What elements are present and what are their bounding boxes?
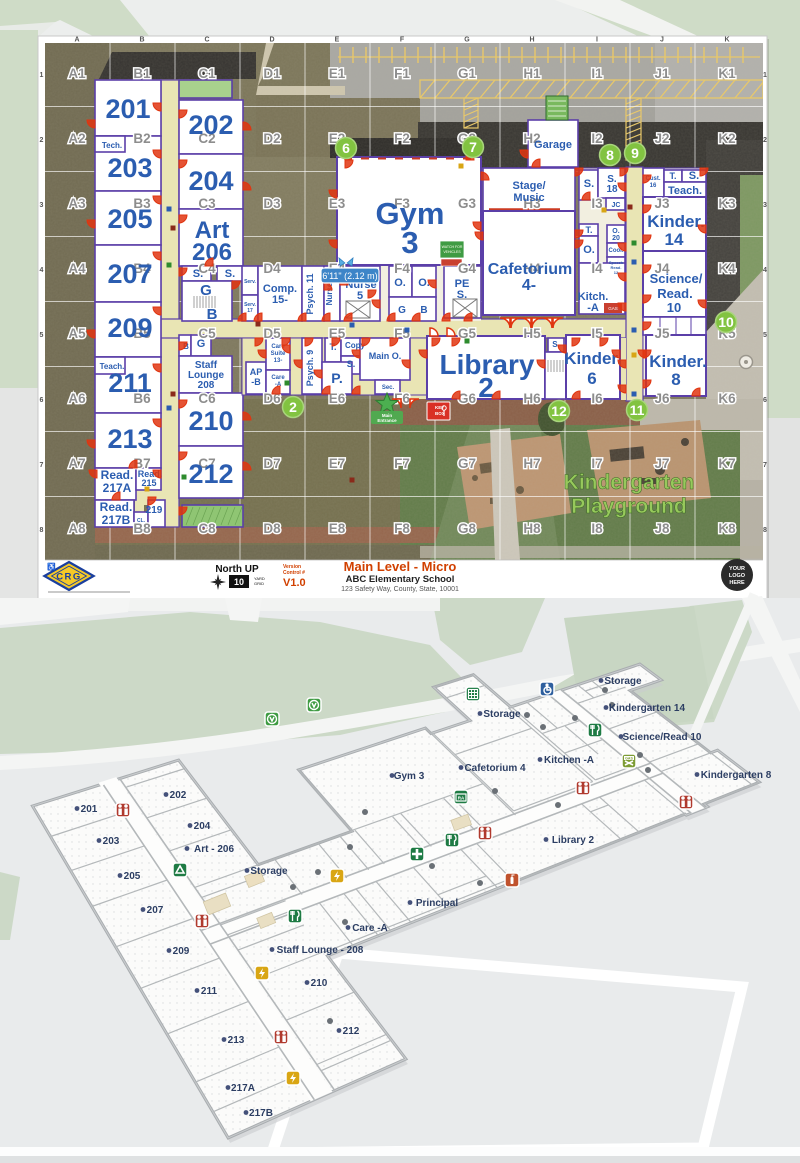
- svg-text:6: 6: [342, 140, 350, 156]
- svg-text:1: 1: [40, 72, 44, 79]
- svg-text:Cafetorium: Cafetorium: [488, 261, 572, 278]
- svg-text:6'11" (2.12 m): 6'11" (2.12 m): [322, 271, 377, 281]
- svg-text:Storage: Storage: [483, 709, 521, 720]
- svg-text:K1: K1: [718, 66, 736, 81]
- svg-text:S.: S.: [689, 170, 699, 182]
- svg-text:Library 2: Library 2: [552, 835, 595, 846]
- svg-text:V1.0: V1.0: [283, 577, 306, 589]
- svg-text:201: 201: [105, 94, 150, 124]
- svg-text:H8: H8: [523, 521, 541, 536]
- svg-text:B: B: [207, 306, 218, 323]
- svg-text:G4: G4: [458, 261, 477, 276]
- svg-text:Kindergarten: Kindergarten: [564, 471, 695, 494]
- svg-text:208: 208: [198, 380, 215, 391]
- svg-text:JC: JC: [612, 202, 621, 209]
- svg-text:H1: H1: [523, 66, 541, 81]
- svg-text:J6: J6: [654, 391, 670, 406]
- svg-text:S.: S.: [457, 289, 467, 301]
- svg-text:C3: C3: [198, 196, 216, 211]
- svg-text:I7: I7: [591, 456, 602, 471]
- svg-text:Psych. 9: Psych. 9: [305, 350, 315, 387]
- svg-text:Serv.: Serv.: [244, 279, 256, 285]
- svg-text:Garage: Garage: [534, 139, 572, 151]
- svg-text:Psych. 11: Psych. 11: [305, 273, 315, 314]
- svg-text:219: 219: [146, 505, 163, 516]
- svg-text:BOX: BOX: [435, 411, 445, 416]
- svg-text:CL.: CL.: [137, 518, 146, 524]
- svg-text:210: 210: [311, 978, 328, 989]
- svg-text:Care -A: Care -A: [352, 923, 388, 934]
- svg-text:S.: S.: [193, 268, 203, 280]
- svg-text:202: 202: [188, 110, 233, 140]
- svg-text:A4: A4: [68, 261, 86, 276]
- svg-text:Entrance: Entrance: [377, 418, 397, 423]
- svg-text:Suite: Suite: [271, 351, 286, 357]
- svg-text:A3: A3: [68, 196, 86, 211]
- svg-text:7: 7: [763, 462, 767, 469]
- svg-text:K3: K3: [718, 196, 736, 211]
- svg-text:A1: A1: [68, 66, 86, 81]
- svg-text:18: 18: [606, 184, 618, 195]
- svg-text:123 Safety Way, County, State,: 123 Safety Way, County, State, 10001: [341, 586, 459, 593]
- svg-text:J7: J7: [654, 456, 669, 471]
- svg-text:212: 212: [343, 1026, 360, 1037]
- svg-text:J1: J1: [654, 66, 670, 81]
- svg-text:WATCH FOR: WATCH FOR: [442, 245, 463, 249]
- svg-text:B: B: [420, 305, 427, 316]
- svg-text:D: D: [269, 37, 274, 44]
- svg-text:14: 14: [665, 230, 684, 249]
- svg-text:O.: O.: [394, 277, 406, 289]
- svg-text:5: 5: [40, 332, 44, 339]
- svg-text:Teach.: Teach.: [668, 185, 702, 197]
- svg-text:205: 205: [107, 204, 152, 234]
- svg-text:203: 203: [103, 836, 120, 847]
- svg-text:Staff Lounge - 208: Staff Lounge - 208: [277, 945, 364, 956]
- svg-text:217A: 217A: [231, 1083, 255, 1094]
- svg-text:G8: G8: [458, 521, 477, 536]
- svg-text:Read.: Read.: [100, 500, 133, 514]
- svg-text:13-: 13-: [274, 358, 283, 364]
- svg-text:H5: H5: [523, 326, 541, 341]
- svg-text:6: 6: [587, 369, 596, 388]
- svg-text:North UP: North UP: [215, 564, 259, 575]
- svg-text:G: G: [464, 37, 470, 44]
- svg-text:D8: D8: [263, 521, 281, 536]
- svg-text:Read.: Read.: [657, 286, 692, 301]
- svg-text:C6: C6: [198, 391, 216, 406]
- svg-text:F4: F4: [394, 261, 410, 276]
- svg-text:G: G: [398, 305, 406, 316]
- svg-text:C8: C8: [198, 521, 216, 536]
- svg-text:6: 6: [763, 397, 767, 404]
- svg-text:GAS: GAS: [625, 756, 633, 760]
- svg-text:♿: ♿: [47, 562, 56, 571]
- svg-text:7: 7: [469, 139, 477, 155]
- svg-text:Control #: Control #: [283, 570, 305, 576]
- svg-text:ABC Elementary School: ABC Elementary School: [346, 574, 455, 585]
- svg-text:J3: J3: [654, 196, 670, 211]
- svg-text:Kindergarten 14: Kindergarten 14: [609, 703, 686, 714]
- svg-text:Science/: Science/: [650, 271, 703, 286]
- svg-text:202: 202: [170, 790, 187, 801]
- svg-text:Cafetorium 4: Cafetorium 4: [464, 763, 526, 774]
- svg-text:Read.: Read.: [101, 468, 134, 482]
- svg-text:5: 5: [357, 290, 363, 302]
- svg-text:Art - 206: Art - 206: [194, 844, 234, 855]
- svg-text:J8: J8: [654, 521, 670, 536]
- svg-text:2: 2: [40, 137, 44, 144]
- svg-text:S.: S.: [225, 268, 235, 280]
- svg-text:12: 12: [551, 403, 567, 419]
- svg-text:10: 10: [718, 314, 734, 330]
- svg-text:-A: -A: [587, 302, 599, 314]
- svg-text:E: E: [335, 37, 340, 44]
- svg-text:Sec.: Sec.: [382, 385, 395, 391]
- svg-text:RA: RA: [458, 795, 465, 800]
- svg-text:Science/Read 10: Science/Read 10: [623, 732, 702, 743]
- svg-text:F: F: [400, 37, 405, 44]
- svg-text:J: J: [660, 37, 664, 44]
- svg-text:Main O.: Main O.: [369, 351, 402, 361]
- svg-text:Tech.: Tech.: [102, 141, 122, 150]
- svg-text:B2: B2: [133, 131, 150, 146]
- svg-text:A2: A2: [68, 131, 85, 146]
- svg-text:K4: K4: [718, 261, 736, 276]
- svg-text:204: 204: [188, 166, 233, 196]
- svg-text:J2: J2: [654, 131, 669, 146]
- svg-text:E8: E8: [329, 521, 346, 536]
- svg-text:205: 205: [124, 871, 141, 882]
- svg-text:217B: 217B: [102, 513, 131, 527]
- svg-text:T.: T.: [669, 171, 676, 181]
- svg-text:Kinder.: Kinder.: [647, 212, 705, 231]
- svg-text:C: C: [204, 37, 209, 44]
- svg-text:E6: E6: [329, 391, 346, 406]
- svg-text:Stage/: Stage/: [512, 180, 545, 192]
- svg-text:F8: F8: [394, 521, 410, 536]
- svg-text:F7: F7: [394, 456, 410, 471]
- svg-text:LOGO: LOGO: [729, 573, 746, 579]
- svg-text:A6: A6: [68, 391, 86, 406]
- svg-text:213: 213: [107, 424, 152, 454]
- svg-text:Kindergarten 8: Kindergarten 8: [701, 770, 772, 781]
- svg-text:G7: G7: [458, 456, 476, 471]
- svg-text:2: 2: [763, 137, 767, 144]
- svg-text:212: 212: [188, 459, 233, 489]
- svg-text:GAS: GAS: [608, 306, 618, 311]
- svg-text:8: 8: [40, 527, 44, 534]
- svg-text:E1: E1: [329, 66, 346, 81]
- svg-text:D4: D4: [263, 261, 281, 276]
- svg-text:3: 3: [40, 202, 44, 209]
- svg-text:11: 11: [630, 402, 645, 418]
- svg-text:17: 17: [247, 308, 253, 314]
- svg-text:209: 209: [173, 946, 190, 957]
- svg-text:T.: T.: [585, 225, 592, 235]
- svg-text:I4: I4: [591, 261, 603, 276]
- svg-text:C1: C1: [198, 66, 216, 81]
- svg-text:F2: F2: [394, 131, 410, 146]
- svg-text:8: 8: [606, 147, 614, 163]
- svg-text:Storage: Storage: [604, 676, 642, 687]
- svg-text:K6: K6: [718, 391, 736, 406]
- svg-text:K2: K2: [718, 131, 735, 146]
- svg-text:K: K: [724, 37, 729, 44]
- svg-text:Music: Music: [513, 192, 544, 204]
- svg-text:I1: I1: [591, 66, 603, 81]
- svg-text:F1: F1: [394, 66, 410, 81]
- svg-text:6: 6: [40, 397, 44, 404]
- svg-text:3: 3: [401, 225, 418, 260]
- svg-text:207: 207: [107, 259, 152, 289]
- svg-text:O.: O.: [583, 244, 595, 256]
- svg-text:4-: 4-: [522, 277, 536, 294]
- svg-text:G1: G1: [458, 66, 477, 81]
- svg-text:I2: I2: [591, 131, 602, 146]
- svg-text:10: 10: [234, 577, 244, 587]
- svg-text:K7: K7: [718, 456, 735, 471]
- svg-text:1: 1: [763, 72, 767, 79]
- svg-text:204: 204: [194, 821, 211, 832]
- svg-text:B: B: [139, 37, 144, 44]
- svg-text:D2: D2: [263, 131, 280, 146]
- svg-text:210: 210: [188, 406, 233, 436]
- svg-text:4: 4: [763, 267, 767, 274]
- svg-text:I3: I3: [591, 196, 603, 211]
- svg-text:7: 7: [40, 462, 44, 469]
- svg-text:H: H: [529, 37, 534, 44]
- svg-text:A5: A5: [68, 326, 86, 341]
- svg-text:2: 2: [289, 399, 297, 415]
- svg-text:207: 207: [147, 905, 164, 916]
- svg-text:B1: B1: [133, 66, 151, 81]
- svg-text:H6: H6: [523, 391, 541, 406]
- svg-text:P.: P.: [331, 370, 342, 386]
- svg-text:-B: -B: [251, 377, 261, 387]
- svg-text:I8: I8: [591, 521, 603, 536]
- svg-text:15-: 15-: [272, 294, 288, 306]
- svg-text:8: 8: [763, 527, 767, 534]
- svg-text:J5: J5: [654, 326, 670, 341]
- svg-text:A: A: [74, 37, 79, 44]
- svg-text:A7: A7: [68, 456, 85, 471]
- svg-text:G3: G3: [458, 196, 477, 211]
- svg-text:E7: E7: [329, 456, 346, 471]
- svg-text:9: 9: [631, 145, 639, 161]
- svg-text:5: 5: [763, 332, 767, 339]
- svg-text:HERE: HERE: [729, 580, 745, 586]
- svg-text:Kitchen -A: Kitchen -A: [544, 755, 594, 766]
- svg-text:211: 211: [201, 986, 218, 997]
- svg-text:217B: 217B: [249, 1108, 273, 1119]
- svg-text:G6: G6: [458, 391, 477, 406]
- svg-text:K8: K8: [718, 521, 736, 536]
- svg-text:8: 8: [671, 370, 680, 389]
- svg-text:D7: D7: [263, 456, 280, 471]
- svg-text:G: G: [197, 338, 206, 350]
- svg-text:Playground: Playground: [571, 495, 687, 518]
- svg-text:Care: Care: [271, 375, 285, 381]
- svg-text:I: I: [596, 37, 598, 44]
- svg-text:D3: D3: [263, 196, 281, 211]
- svg-text:4: 4: [40, 267, 44, 274]
- svg-text:Principal: Principal: [416, 898, 458, 909]
- svg-text:O.: O.: [612, 228, 619, 235]
- svg-text:3: 3: [763, 202, 767, 209]
- svg-text:I6: I6: [591, 391, 603, 406]
- svg-text:VEHICLES: VEHICLES: [443, 250, 461, 254]
- svg-text:A8: A8: [68, 521, 86, 536]
- svg-text:Kinder.: Kinder.: [649, 352, 707, 371]
- svg-text:YOUR: YOUR: [729, 566, 745, 572]
- svg-text:Storage: Storage: [250, 866, 288, 877]
- svg-text:201: 201: [81, 804, 98, 815]
- svg-text:D5: D5: [263, 326, 281, 341]
- svg-text:D1: D1: [263, 66, 281, 81]
- svg-text:S.: S.: [584, 178, 594, 190]
- svg-text:GRID: GRID: [254, 581, 264, 586]
- svg-text:203: 203: [107, 153, 152, 183]
- svg-text:2: 2: [478, 372, 494, 403]
- svg-text:Gym 3: Gym 3: [394, 771, 425, 782]
- svg-text:10: 10: [667, 300, 681, 315]
- svg-text:213: 213: [228, 1035, 245, 1046]
- svg-text:211: 211: [108, 368, 152, 398]
- svg-text:AP: AP: [250, 367, 263, 377]
- svg-text:G: G: [200, 282, 212, 299]
- svg-text:16: 16: [650, 183, 657, 189]
- svg-text:CRG: CRG: [56, 572, 82, 583]
- svg-text:20: 20: [612, 235, 620, 242]
- svg-text:S.: S.: [347, 359, 356, 369]
- svg-text:Main Level - Micro: Main Level - Micro: [344, 559, 457, 574]
- svg-text:209: 209: [107, 313, 152, 343]
- svg-text:H7: H7: [523, 456, 540, 471]
